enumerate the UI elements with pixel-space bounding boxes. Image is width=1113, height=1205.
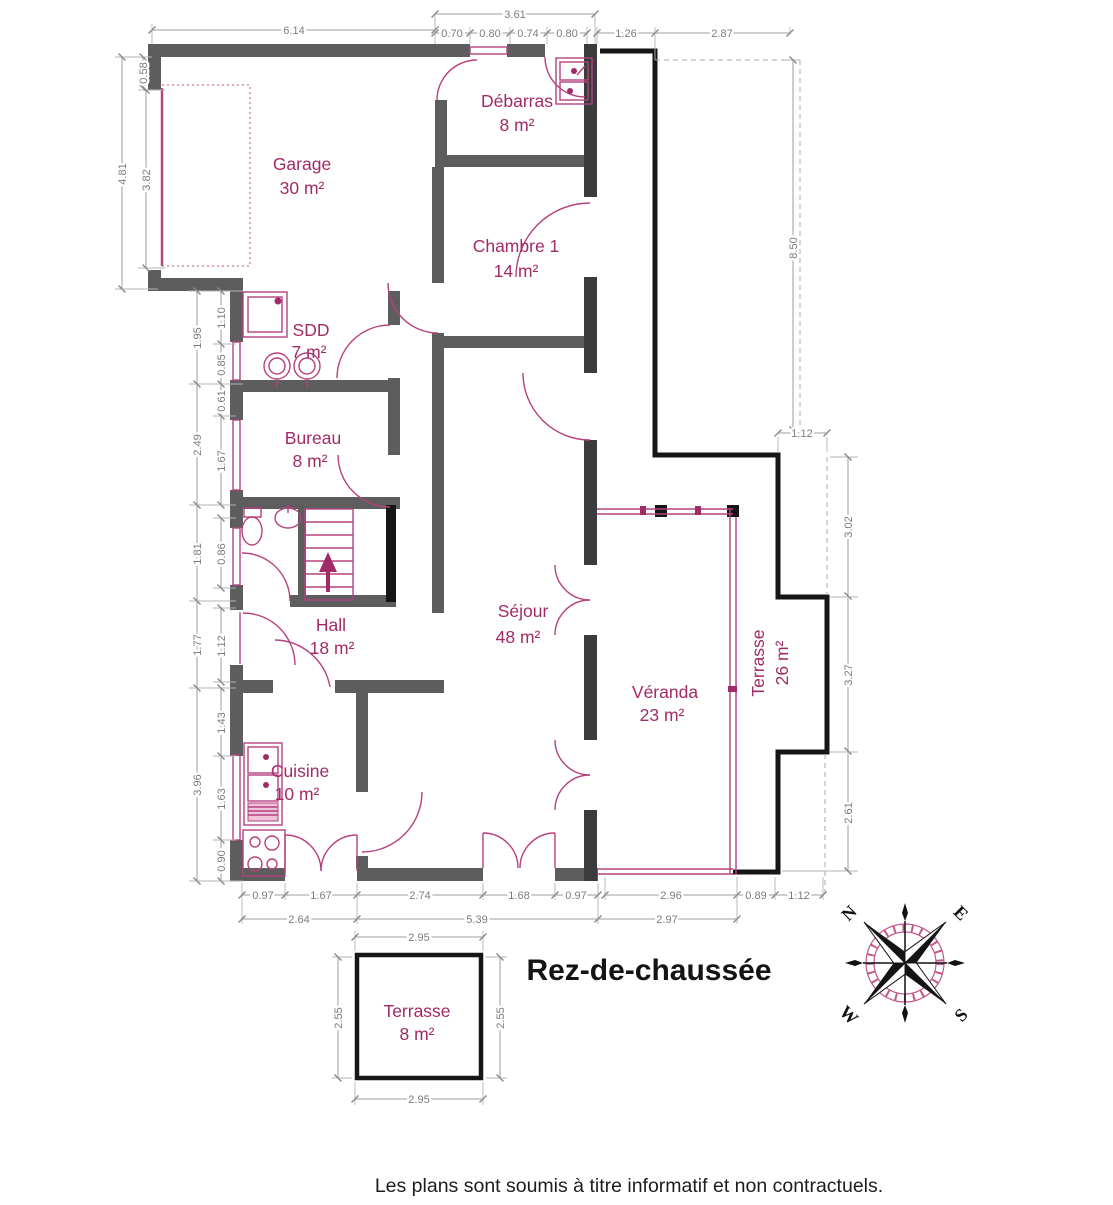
svg-text:10 m²: 10 m² [275, 784, 320, 804]
dimension-label: 1.81 [192, 543, 204, 564]
dimension-label: 1.77 [192, 634, 204, 655]
dimension-label: 2.64 [288, 914, 309, 926]
svg-text:23 m²: 23 m² [640, 705, 685, 725]
svg-text:18 m²: 18 m² [310, 638, 355, 658]
dimension-label: 0.74 [517, 28, 538, 40]
dimensions-left-garage: 0.58 4.81 3.82 [117, 57, 153, 289]
window-sdd [233, 342, 240, 380]
room-label-garage: Garage 30 m² [273, 154, 331, 198]
room-label-debarras: Débarras 8 m² [481, 91, 553, 135]
dimension-label: 2.55 [333, 1007, 345, 1028]
svg-text:14 m²: 14 m² [494, 261, 539, 281]
dimension-label: 1.68 [508, 890, 529, 902]
dimension-label: 2.97 [656, 914, 677, 926]
dimension-label: 1.63 [216, 788, 228, 809]
dimension-label: 2.61 [843, 802, 855, 823]
dimension-label: 0.58 [138, 62, 150, 83]
svg-text:30 m²: 30 m² [280, 178, 325, 198]
dimension-label: 1.12 [216, 635, 228, 656]
svg-text:Terrasse: Terrasse [383, 1001, 450, 1021]
dimensions-top: 6.14 3.61 0.70 0.80 0.74 0.80 1.26 2.87 [152, 9, 790, 40]
dimension-label: 0.85 [216, 354, 228, 375]
dimension-label: 3.02 [843, 516, 855, 537]
floor-plan-page: 6.14 3.61 0.70 0.80 0.74 0.80 1.26 2.87 … [0, 0, 1113, 1200]
room-label-terrasse-est: Terrasse 26 m² [748, 629, 792, 696]
dimension-label: 0.61 [216, 390, 228, 411]
room-labels: Garage 30 m² Débarras 8 m² Chambre 1 14 … [271, 91, 792, 1044]
dimension-label: 2.74 [409, 890, 430, 902]
svg-text:8 m²: 8 m² [500, 115, 535, 135]
dimension-label: 3.96 [192, 774, 204, 795]
dimension-label: 1.12 [788, 890, 809, 902]
svg-text:Hall: Hall [316, 615, 346, 635]
window-cuisine [233, 755, 240, 840]
toilet [242, 508, 262, 545]
dimension-label: 1.67 [310, 890, 331, 902]
dimension-label: 0.80 [556, 28, 577, 40]
compass-west-label: W [836, 1002, 863, 1029]
svg-text:26 m²: 26 m² [772, 640, 792, 685]
dimension-label: 2.87 [711, 28, 732, 40]
dimension-label: 0.97 [252, 890, 273, 902]
dimension-label: 2.55 [495, 1007, 507, 1028]
svg-text:Véranda: Véranda [632, 682, 698, 702]
compass-east-label: E [950, 902, 973, 925]
dimensions-right: 8.50 1.12 3.02 3.27 2.61 [778, 60, 855, 871]
dimension-label: 2.96 [660, 890, 681, 902]
property-dashed-boundary [655, 60, 827, 893]
dimension-label: 0.90 [216, 850, 228, 871]
dimension-label: 1.67 [216, 450, 228, 471]
floor-title: Rez-de-chaussée [526, 954, 771, 987]
room-label-veranda: Véranda 23 m² [632, 682, 698, 725]
window-wc [233, 528, 240, 585]
dimension-label: 1.95 [192, 327, 204, 348]
svg-text:Terrasse: Terrasse [748, 629, 768, 696]
dimension-label: 5.39 [466, 914, 487, 926]
dimension-label: 2.49 [192, 434, 204, 455]
shower [243, 292, 287, 337]
compass-south-label: S [950, 1004, 971, 1025]
garage-door [162, 85, 250, 266]
svg-text:Cuisine: Cuisine [271, 761, 329, 781]
window-debarras [470, 47, 507, 54]
svg-text:8 m²: 8 m² [293, 451, 328, 471]
svg-text:Bureau: Bureau [285, 428, 341, 448]
dimension-label: 1.43 [216, 712, 228, 733]
dimension-label: 8.50 [788, 237, 800, 258]
fixtures-and-openings [162, 47, 737, 876]
svg-text:SDD: SDD [293, 320, 330, 340]
dimension-label: 1.12 [791, 428, 812, 440]
room-label-sdd: SDD 7 m² [292, 320, 330, 362]
compass-rose: N E S W [836, 901, 973, 1028]
window-bureau [233, 420, 240, 490]
svg-text:7 m²: 7 m² [292, 342, 327, 362]
room-label-hall: Hall 18 m² [310, 615, 355, 658]
staircase [305, 509, 353, 600]
dimensions-left: 1.95 1.10 0.85 2.49 0.61 1.67 1.81 0.86 … [192, 291, 228, 881]
floor-plan-canvas: 6.14 3.61 0.70 0.80 0.74 0.80 1.26 2.87 … [0, 0, 1113, 1200]
dimension-label: 2.95 [408, 932, 429, 944]
dimension-label: 0.89 [745, 890, 766, 902]
dimension-label: 0.97 [565, 890, 586, 902]
room-label-chambre1: Chambre 1 14 m² [473, 236, 560, 281]
dimension-label: 2.95 [408, 1094, 429, 1106]
dimension-label: 0.70 [441, 28, 462, 40]
dimension-label: 1.26 [615, 28, 636, 40]
compass-north-label: N [837, 901, 860, 924]
dimension-label: 4.81 [117, 163, 129, 184]
dimension-label: 3.61 [504, 9, 525, 21]
dimension-label: 3.82 [141, 169, 153, 190]
svg-text:8 m²: 8 m² [400, 1024, 435, 1044]
svg-text:Débarras: Débarras [481, 91, 553, 111]
svg-text:48 m²: 48 m² [496, 627, 541, 647]
dimensions-bottom: 0.97 1.67 2.74 1.68 0.97 2.96 0.89 1.12 … [242, 890, 823, 926]
room-label-cuisine: Cuisine 10 m² [271, 761, 329, 804]
room-label-bureau: Bureau 8 m² [285, 428, 341, 471]
dimension-label: 1.10 [216, 307, 228, 328]
svg-text:Chambre 1: Chambre 1 [473, 236, 560, 256]
svg-text:Garage: Garage [273, 154, 331, 174]
dimension-label: 0.86 [216, 543, 228, 564]
dimension-label: 0.80 [479, 28, 500, 40]
svg-text:Séjour: Séjour [498, 601, 549, 621]
room-label-sejour: Séjour 48 m² [496, 601, 549, 647]
dimension-label: 3.27 [843, 664, 855, 685]
disclaimer-footer: Les plans sont soumis à titre informatif… [375, 1175, 883, 1197]
dimension-label: 6.14 [283, 25, 304, 37]
